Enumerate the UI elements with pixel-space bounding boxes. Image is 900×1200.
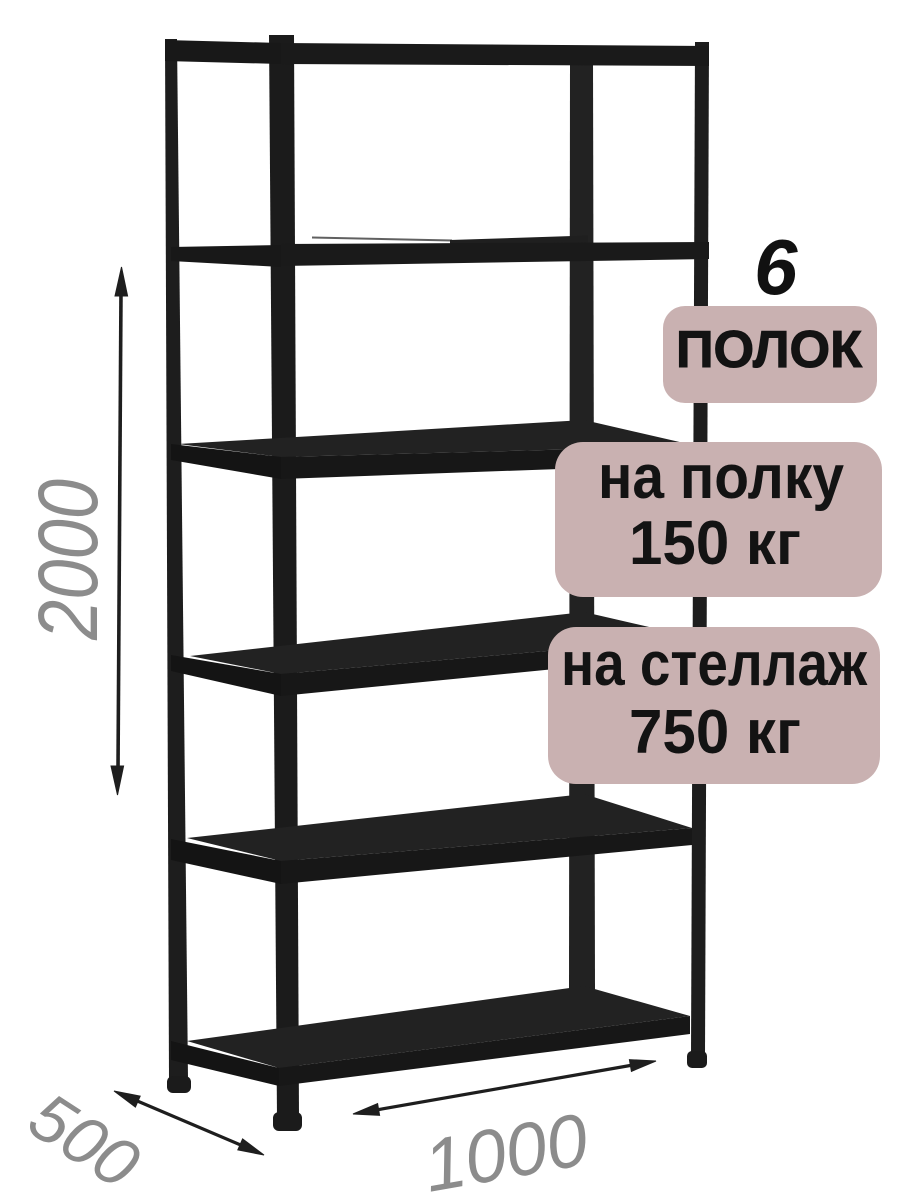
svg-text:ПОЛОК: ПОЛОК <box>676 321 862 379</box>
svg-text:на стеллаж: на стеллаж <box>561 630 868 699</box>
svg-text:на полку: на полку <box>598 443 844 512</box>
svg-text:1000: 1000 <box>417 1097 594 1200</box>
svg-text:750 кг: 750 кг <box>629 698 801 767</box>
svg-text:6: 6 <box>754 223 798 311</box>
svg-text:150 кг: 150 кг <box>629 509 801 578</box>
svg-text:2000: 2000 <box>21 479 115 641</box>
